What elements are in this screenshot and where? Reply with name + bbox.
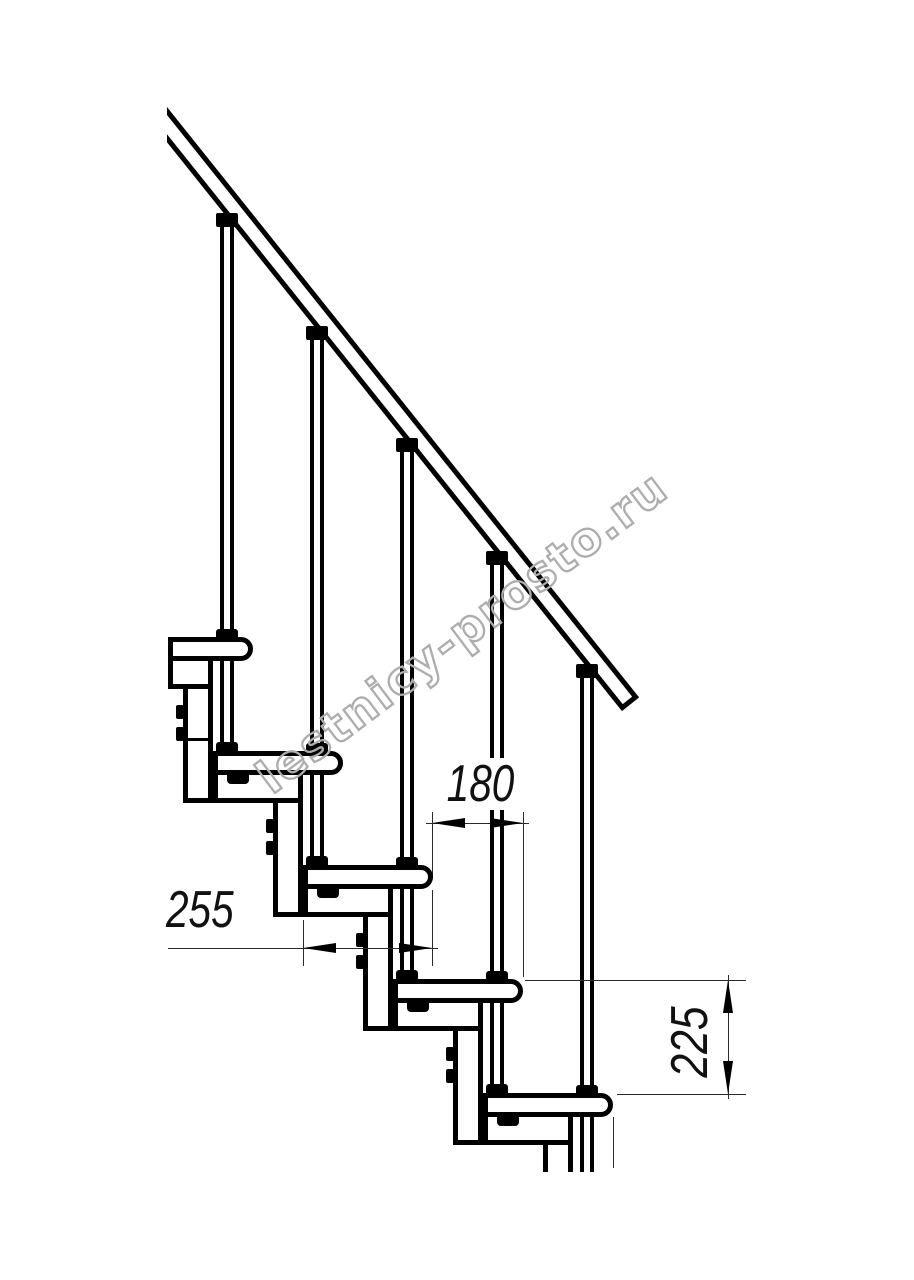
module-clip xyxy=(446,1069,454,1083)
extension-line xyxy=(525,980,746,982)
tread-nub xyxy=(227,775,249,784)
dimension-label-run: 180 xyxy=(442,758,519,810)
handrail-clip xyxy=(167,0,914,1280)
baluster-collar xyxy=(486,971,508,981)
module-clip xyxy=(356,933,364,947)
module-column xyxy=(183,689,213,803)
dimension-label-tread-length: 255 xyxy=(166,884,234,936)
baluster-rail-collar xyxy=(306,326,328,340)
staircase-drawing-canvas: 255 180 225 lestnicy-prosto.ru xyxy=(0,0,914,1280)
module-clip xyxy=(266,841,274,855)
module-column xyxy=(363,917,393,1031)
baluster xyxy=(220,215,234,637)
baluster-collar xyxy=(216,629,238,639)
dimension-label-rise: 225 xyxy=(664,985,716,1100)
baluster xyxy=(580,666,594,1093)
baluster-lower-segment xyxy=(490,1003,504,1093)
module-column xyxy=(453,1031,483,1145)
arrowhead-up-icon xyxy=(723,980,733,1013)
baluster-collar xyxy=(306,743,328,753)
arrowhead-right-icon xyxy=(399,943,432,953)
baluster-lower-segment xyxy=(580,1117,594,1172)
arrowhead-left-icon xyxy=(432,818,465,828)
baluster-lower-segment xyxy=(310,775,324,865)
arrowhead-down-icon xyxy=(723,1061,733,1094)
arrowhead-right-icon xyxy=(490,818,523,828)
baluster-rail-collar xyxy=(216,213,238,227)
module-base xyxy=(168,661,213,689)
module-clip xyxy=(176,705,184,719)
baluster xyxy=(400,440,414,865)
tread xyxy=(393,979,523,1003)
baluster-rail-collar xyxy=(486,551,508,565)
tread-nub xyxy=(407,1003,429,1012)
baluster-lower-segment xyxy=(220,661,234,751)
module-clip xyxy=(446,1047,454,1061)
module-column xyxy=(543,1145,573,1172)
tread-nub xyxy=(317,889,339,898)
module-clip xyxy=(356,955,364,969)
module-joint-line xyxy=(183,738,213,741)
baluster xyxy=(310,328,324,751)
arrowhead-left-icon xyxy=(303,943,336,953)
baluster-rail-collar xyxy=(576,664,598,678)
module-column xyxy=(273,803,303,917)
tread xyxy=(483,1093,613,1117)
tread xyxy=(303,865,433,889)
baluster-lower-segment xyxy=(400,889,414,979)
extension-line xyxy=(613,1117,615,1168)
tread-nub xyxy=(497,1117,519,1126)
baluster-rail-collar xyxy=(396,438,418,452)
tread xyxy=(213,751,343,775)
tread xyxy=(168,637,253,661)
baluster-collar xyxy=(396,857,418,867)
module-clip xyxy=(266,819,274,833)
baluster-collar xyxy=(576,1085,598,1095)
